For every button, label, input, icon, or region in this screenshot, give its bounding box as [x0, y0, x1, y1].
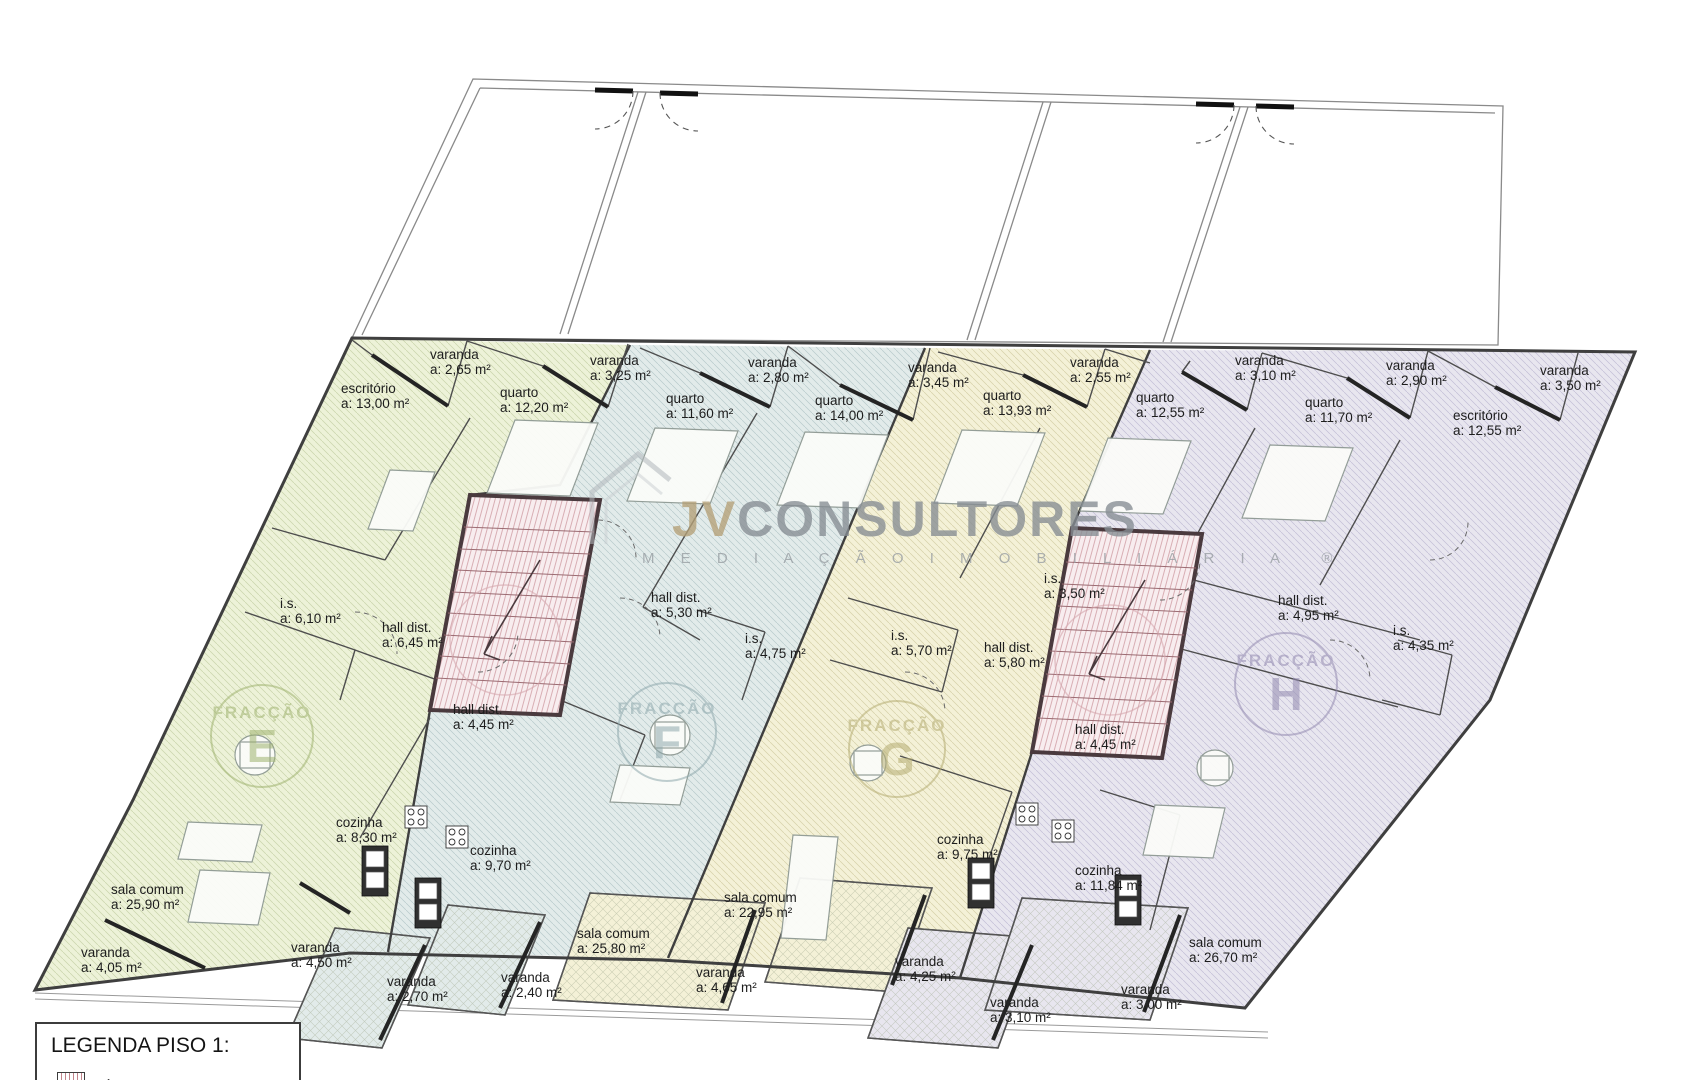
floor-plan-page: varandaa: 2,65 m²varandaa: 3,25 m²varand…: [0, 0, 1689, 1080]
room-area: a: 3,45 m²: [908, 375, 969, 390]
room-name: varanda: [81, 945, 130, 960]
room-name: hall dist.: [984, 640, 1034, 655]
room-area: a: 3,10 m²: [1235, 368, 1296, 383]
room-label: hall dist.a: 4,45 m²: [453, 702, 514, 732]
room-label: sala comuma: 26,70 m²: [1189, 935, 1262, 965]
room-area: a: 11,70 m²: [1305, 410, 1372, 425]
room-area: a: 2,55 m²: [1070, 370, 1131, 385]
room-label: hall dist.a: 4,95 m²: [1278, 593, 1339, 623]
room-name: quarto: [815, 393, 853, 408]
room-name: varanda: [291, 940, 340, 955]
legend-row: ÁREAS COMUNS a: 29,05 m²: [57, 1072, 299, 1080]
room-name: varanda: [748, 355, 797, 370]
room-name: sala comum: [724, 890, 797, 905]
room-label: quartoa: 11,70 m²: [1305, 395, 1372, 425]
room-label: varandaa: 3,10 m²: [1235, 353, 1296, 383]
room-area: a: 5,70 m²: [891, 643, 952, 658]
room-area: a: 4,25 m²: [895, 969, 956, 984]
room-label: hall dist.a: 6,45 m²: [382, 620, 443, 650]
room-label: i.s.a: 4,75 m²: [745, 631, 806, 661]
room-name: i.s.: [1044, 571, 1061, 586]
room-label: varandaa: 3,10 m²: [990, 995, 1051, 1025]
room-label: i.s.a: 5,70 m²: [891, 628, 952, 658]
room-area: a: 3,50 m²: [1540, 378, 1601, 393]
legend-box: LEGENDA PISO 1: ÁREAS COMUNS a: 29,05 m²: [35, 1022, 301, 1080]
room-name: varanda: [430, 347, 479, 362]
room-area: a: 3,25 m²: [590, 368, 651, 383]
room-name: varanda: [990, 995, 1039, 1010]
room-area: a: 4,95 m²: [1278, 608, 1339, 623]
room-area: a: 6,45 m²: [382, 635, 443, 650]
room-area: a: 2,65 m²: [430, 362, 491, 377]
room-name: hall dist.: [382, 620, 432, 635]
room-name: varanda: [501, 970, 550, 985]
room-area: a: 4,65 m²: [696, 980, 757, 995]
room-area: a: 4,05 m²: [81, 960, 142, 975]
room-name: varanda: [590, 353, 639, 368]
room-name: cozinha: [470, 843, 517, 858]
room-label: quartoa: 13,93 m²: [983, 388, 1051, 418]
room-name: varanda: [1070, 355, 1119, 370]
areas-comuns-swatch: [57, 1072, 85, 1080]
room-area: a: 11,60 m²: [666, 406, 733, 421]
room-label: varandaa: 4,65 m²: [696, 965, 757, 995]
room-name: escritório: [1453, 408, 1508, 423]
room-label: quartoa: 11,60 m²: [666, 391, 733, 421]
room-name: varanda: [387, 974, 436, 989]
room-label: varandaa: 3,25 m²: [590, 353, 651, 383]
room-label: varandaa: 2,55 m²: [1070, 355, 1131, 385]
room-label: varandaa: 4,25 m²: [895, 954, 956, 984]
room-label: quartoa: 14,00 m²: [815, 393, 883, 423]
room-area: a: 4,75 m²: [745, 646, 806, 661]
room-area: a: 9,70 m²: [470, 858, 531, 873]
room-label: hall dist.a: 4,45 m²: [1075, 722, 1136, 752]
room-area: a: 8,30 m²: [336, 830, 397, 845]
room-area: a: 14,00 m²: [815, 408, 883, 423]
room-name: escritório: [341, 381, 396, 396]
room-area: a: 11,84 m²: [1075, 878, 1142, 893]
room-area: a: 13,93 m²: [983, 403, 1051, 418]
room-name: sala comum: [111, 882, 184, 897]
room-name: hall dist.: [453, 702, 503, 717]
room-area: a: 26,70 m²: [1189, 950, 1262, 965]
room-area: a: 4,35 m²: [1393, 638, 1454, 653]
room-name: quarto: [1136, 390, 1174, 405]
room-name: varanda: [895, 954, 944, 969]
room-area: a: 12,55 m²: [1136, 405, 1204, 420]
room-name: varanda: [908, 360, 957, 375]
room-area: a: 3,00 m²: [1121, 997, 1182, 1012]
room-area: a: 9,75 m²: [937, 847, 998, 862]
room-area: a: 2,70 m²: [387, 989, 448, 1004]
terrace-area: [352, 79, 1503, 345]
room-label: sala comuma: 22,95 m²: [724, 890, 797, 920]
room-label: quartoa: 12,20 m²: [500, 385, 568, 415]
room-name: hall dist.: [651, 590, 701, 605]
room-area: a: 3,10 m²: [990, 1010, 1051, 1025]
room-label: varandaa: 4,50 m²: [291, 940, 352, 970]
room-area: a: 2,40 m²: [501, 985, 562, 1000]
room-label: varandaa: 2,65 m²: [430, 347, 491, 377]
room-name: varanda: [1386, 358, 1435, 373]
room-label: sala comuma: 25,90 m²: [111, 882, 184, 912]
room-label: i.s.a: 6,10 m²: [280, 596, 341, 626]
room-name: i.s.: [1393, 623, 1410, 638]
room-name: sala comum: [1189, 935, 1262, 950]
room-area: a: 22,95 m²: [724, 905, 797, 920]
room-label: cozinhaa: 9,75 m²: [937, 832, 998, 862]
room-area: a: 6,10 m²: [280, 611, 341, 626]
room-area: a: 4,45 m²: [1075, 737, 1136, 752]
room-area: a: 25,90 m²: [111, 897, 184, 912]
room-area: a: 2,80 m²: [748, 370, 809, 385]
room-label: cozinhaa: 8,30 m²: [336, 815, 397, 845]
room-area: a: 5,30 m²: [651, 605, 712, 620]
room-label: quartoa: 12,55 m²: [1136, 390, 1204, 420]
room-label: varandaa: 2,90 m²: [1386, 358, 1447, 388]
room-label: varandaa: 2,80 m²: [748, 355, 809, 385]
room-label: hall dist.a: 5,30 m²: [651, 590, 712, 620]
legend-title: LEGENDA PISO 1:: [51, 1034, 299, 1058]
room-label: cozinhaa: 9,70 m²: [470, 843, 531, 873]
room-name: quarto: [983, 388, 1021, 403]
room-name: quarto: [1305, 395, 1343, 410]
room-label: i.s.a: 3,50 m²: [1044, 571, 1105, 601]
room-name: varanda: [696, 965, 745, 980]
room-label: escritórioa: 13,00 m²: [341, 381, 409, 411]
room-area: a: 12,55 m²: [1453, 423, 1521, 438]
room-name: cozinha: [336, 815, 383, 830]
room-name: i.s.: [280, 596, 297, 611]
room-label: i.s.a: 4,35 m²: [1393, 623, 1454, 653]
room-label: sala comuma: 25,80 m²: [577, 926, 650, 956]
room-name: hall dist.: [1278, 593, 1328, 608]
room-area: a: 4,50 m²: [291, 955, 352, 970]
room-name: cozinha: [937, 832, 984, 847]
room-label: varandaa: 3,50 m²: [1540, 363, 1601, 393]
room-area: a: 25,80 m²: [577, 941, 650, 956]
room-name: varanda: [1235, 353, 1284, 368]
floor-plan-drawing: [0, 0, 1689, 1080]
room-label: varandaa: 3,00 m²: [1121, 982, 1182, 1012]
room-label: varandaa: 2,70 m²: [387, 974, 448, 1004]
room-name: hall dist.: [1075, 722, 1125, 737]
room-label: varandaa: 3,45 m²: [908, 360, 969, 390]
room-name: quarto: [500, 385, 538, 400]
room-name: varanda: [1121, 982, 1170, 997]
room-label: escritórioa: 12,55 m²: [1453, 408, 1521, 438]
room-label: varandaa: 4,05 m²: [81, 945, 142, 975]
room-area: a: 13,00 m²: [341, 396, 409, 411]
room-name: sala comum: [577, 926, 650, 941]
room-label: hall dist.a: 5,80 m²: [984, 640, 1045, 670]
room-name: cozinha: [1075, 863, 1122, 878]
room-name: varanda: [1540, 363, 1589, 378]
room-area: a: 12,20 m²: [500, 400, 568, 415]
room-name: i.s.: [891, 628, 908, 643]
room-label: cozinhaa: 11,84 m²: [1075, 863, 1142, 893]
room-label: varandaa: 2,40 m²: [501, 970, 562, 1000]
room-area: a: 4,45 m²: [453, 717, 514, 732]
room-name: i.s.: [745, 631, 762, 646]
room-name: quarto: [666, 391, 704, 406]
room-area: a: 3,50 m²: [1044, 586, 1105, 601]
room-area: a: 5,80 m²: [984, 655, 1045, 670]
room-area: a: 2,90 m²: [1386, 373, 1447, 388]
